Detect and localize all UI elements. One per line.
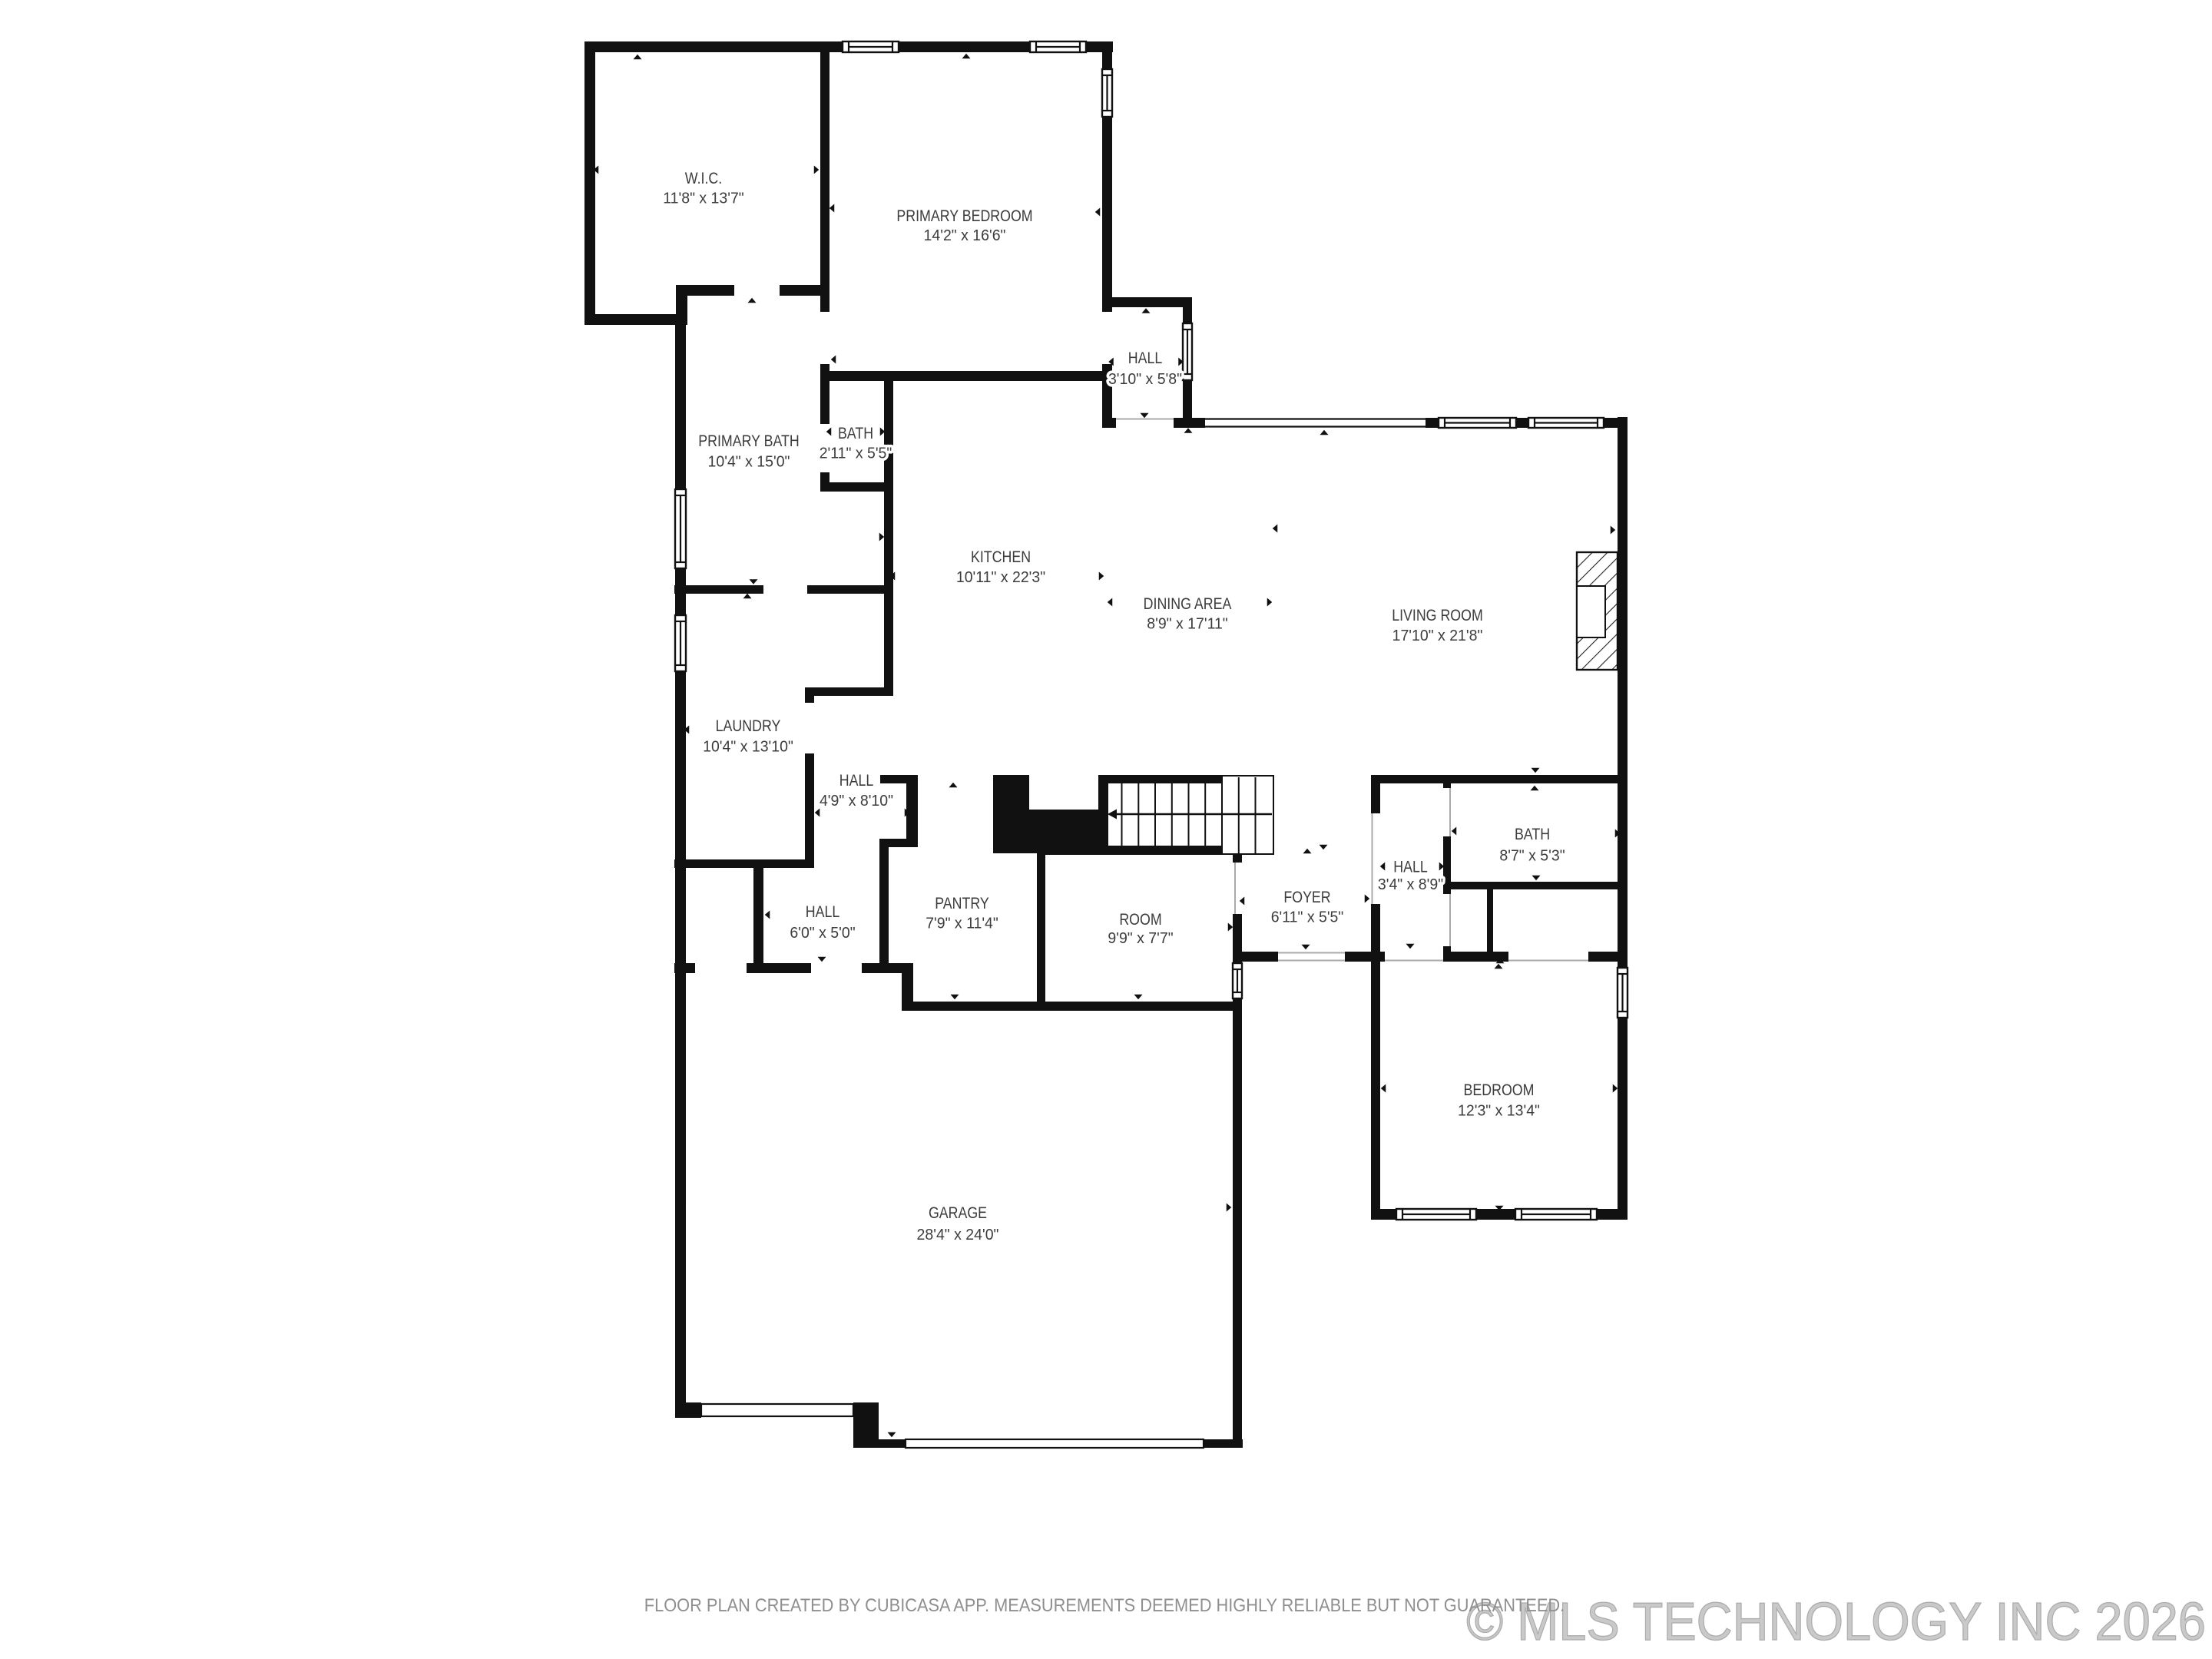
svg-text:10'4" x 13'10": 10'4" x 13'10" [703,738,793,756]
svg-text:ROOM: ROOM [1119,911,1161,929]
svg-text:14'2" x 16'6": 14'2" x 16'6" [924,227,1006,245]
svg-text:DINING AREA: DINING AREA [1144,595,1232,614]
svg-text:17'10" x 21'8": 17'10" x 21'8" [1392,628,1483,645]
svg-text:BATH: BATH [1515,826,1550,844]
svg-text:8'9" x 17'11": 8'9" x 17'11" [1147,615,1227,633]
svg-text:LAUNDRY: LAUNDRY [716,717,781,736]
svg-text:PRIMARY BEDROOM: PRIMARY BEDROOM [896,207,1032,226]
svg-text:PANTRY: PANTRY [935,895,989,913]
svg-text:6'11" x 5'5": 6'11" x 5'5" [1271,909,1344,926]
svg-text:8'7" x 5'3": 8'7" x 5'3" [1499,847,1565,865]
svg-text:7'9" x 11'4": 7'9" x 11'4" [926,915,998,932]
svg-text:3'10" x 5'8": 3'10" x 5'8" [1108,371,1182,389]
svg-text:3'4" x 8'9": 3'4" x 8'9" [1378,876,1443,894]
svg-text:W.I.C.: W.I.C. [685,170,722,188]
svg-text:10'11" x 22'3": 10'11" x 22'3" [956,569,1045,587]
svg-text:HALL: HALL [839,772,874,790]
svg-text:FOYER: FOYER [1283,889,1330,907]
svg-text:28'4" x 24'0": 28'4" x 24'0" [917,1227,999,1244]
svg-text:GARAGE: GARAGE [929,1204,987,1223]
svg-text:11'8" x 13'7": 11'8" x 13'7" [663,190,743,207]
svg-text:HALL: HALL [1393,858,1428,876]
svg-text:PRIMARY BATH: PRIMARY BATH [698,432,799,451]
svg-text:10'4" x 15'0": 10'4" x 15'0" [708,453,790,471]
svg-text:12'3" x 13'4": 12'3" x 13'4" [1458,1102,1540,1120]
svg-text:2'11" x 5'5": 2'11" x 5'5" [820,445,892,462]
svg-text:BEDROOM: BEDROOM [1464,1081,1535,1100]
svg-text:© MLS TECHNOLOGY INC 2026: © MLS TECHNOLOGY INC 2026 [1466,1592,2206,1651]
svg-text:6'0" x 5'0": 6'0" x 5'0" [790,925,855,942]
svg-text:FLOOR PLAN CREATED BY CUBICASA: FLOOR PLAN CREATED BY CUBICASA APP. MEAS… [644,1594,1565,1615]
svg-text:HALL: HALL [1128,349,1163,368]
svg-text:HALL: HALL [806,903,840,922]
svg-text:BATH: BATH [838,425,873,443]
svg-text:9'9" x 7'7": 9'9" x 7'7" [1108,930,1173,948]
svg-text:LIVING ROOM: LIVING ROOM [1392,607,1483,625]
svg-text:KITCHEN: KITCHEN [971,548,1031,567]
svg-text:4'9" x 8'10": 4'9" x 8'10" [820,793,893,810]
